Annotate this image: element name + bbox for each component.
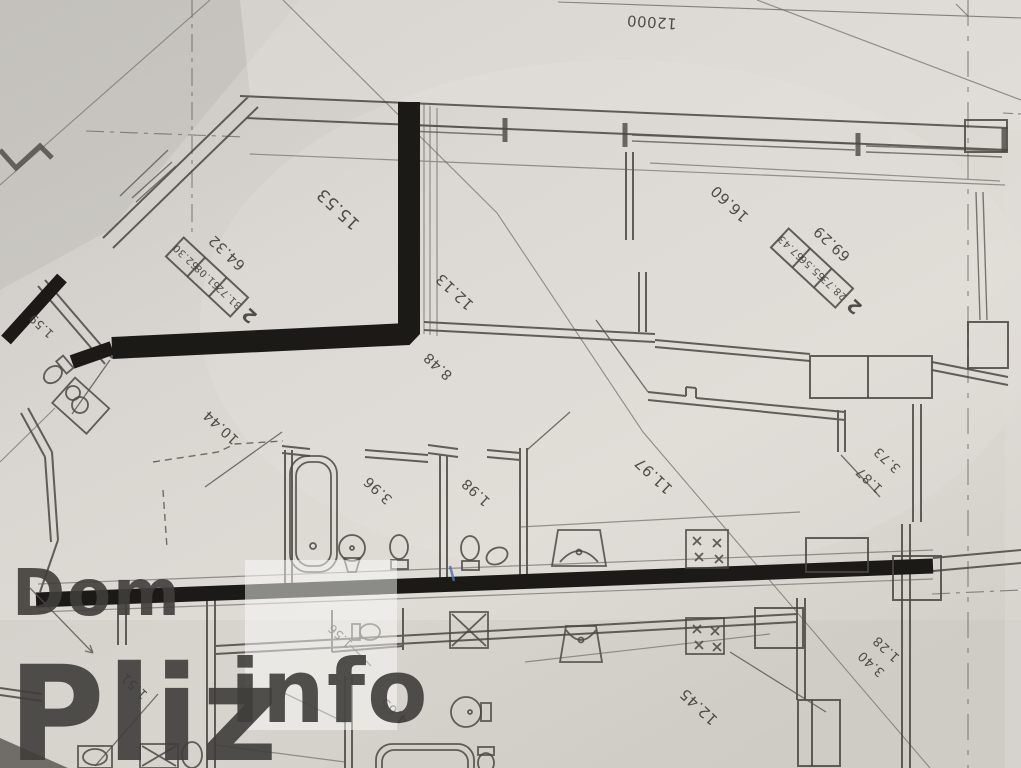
dimension-value: 12000 — [626, 11, 677, 32]
floor-plan-drawing: 12000 — [0, 0, 1021, 768]
floor-plan-photo: 12000 — [0, 0, 1021, 768]
watermark-info: info — [230, 640, 430, 743]
watermark-dom: Dom — [12, 557, 182, 631]
